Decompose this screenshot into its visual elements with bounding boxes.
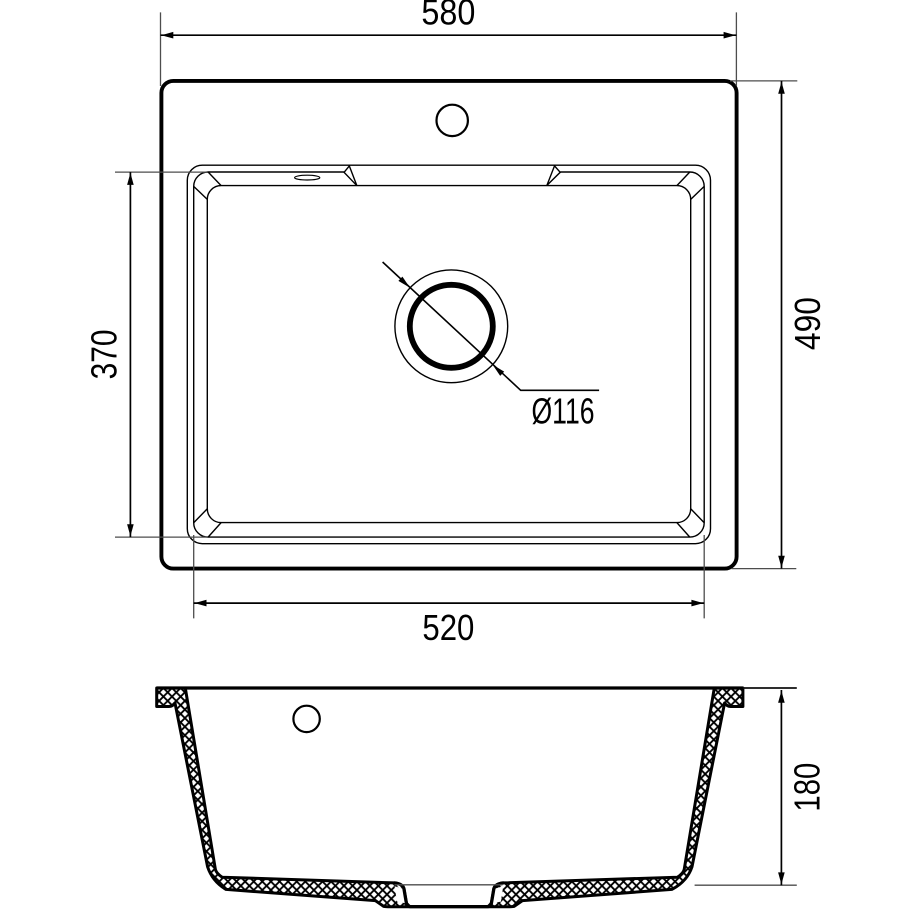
svg-text:490: 490	[787, 297, 828, 350]
svg-text:580: 580	[421, 0, 475, 33]
svg-text:520: 520	[422, 607, 474, 648]
svg-text:Ø116: Ø116	[532, 390, 595, 431]
svg-text:370: 370	[84, 329, 125, 379]
svg-text:180: 180	[787, 763, 828, 812]
